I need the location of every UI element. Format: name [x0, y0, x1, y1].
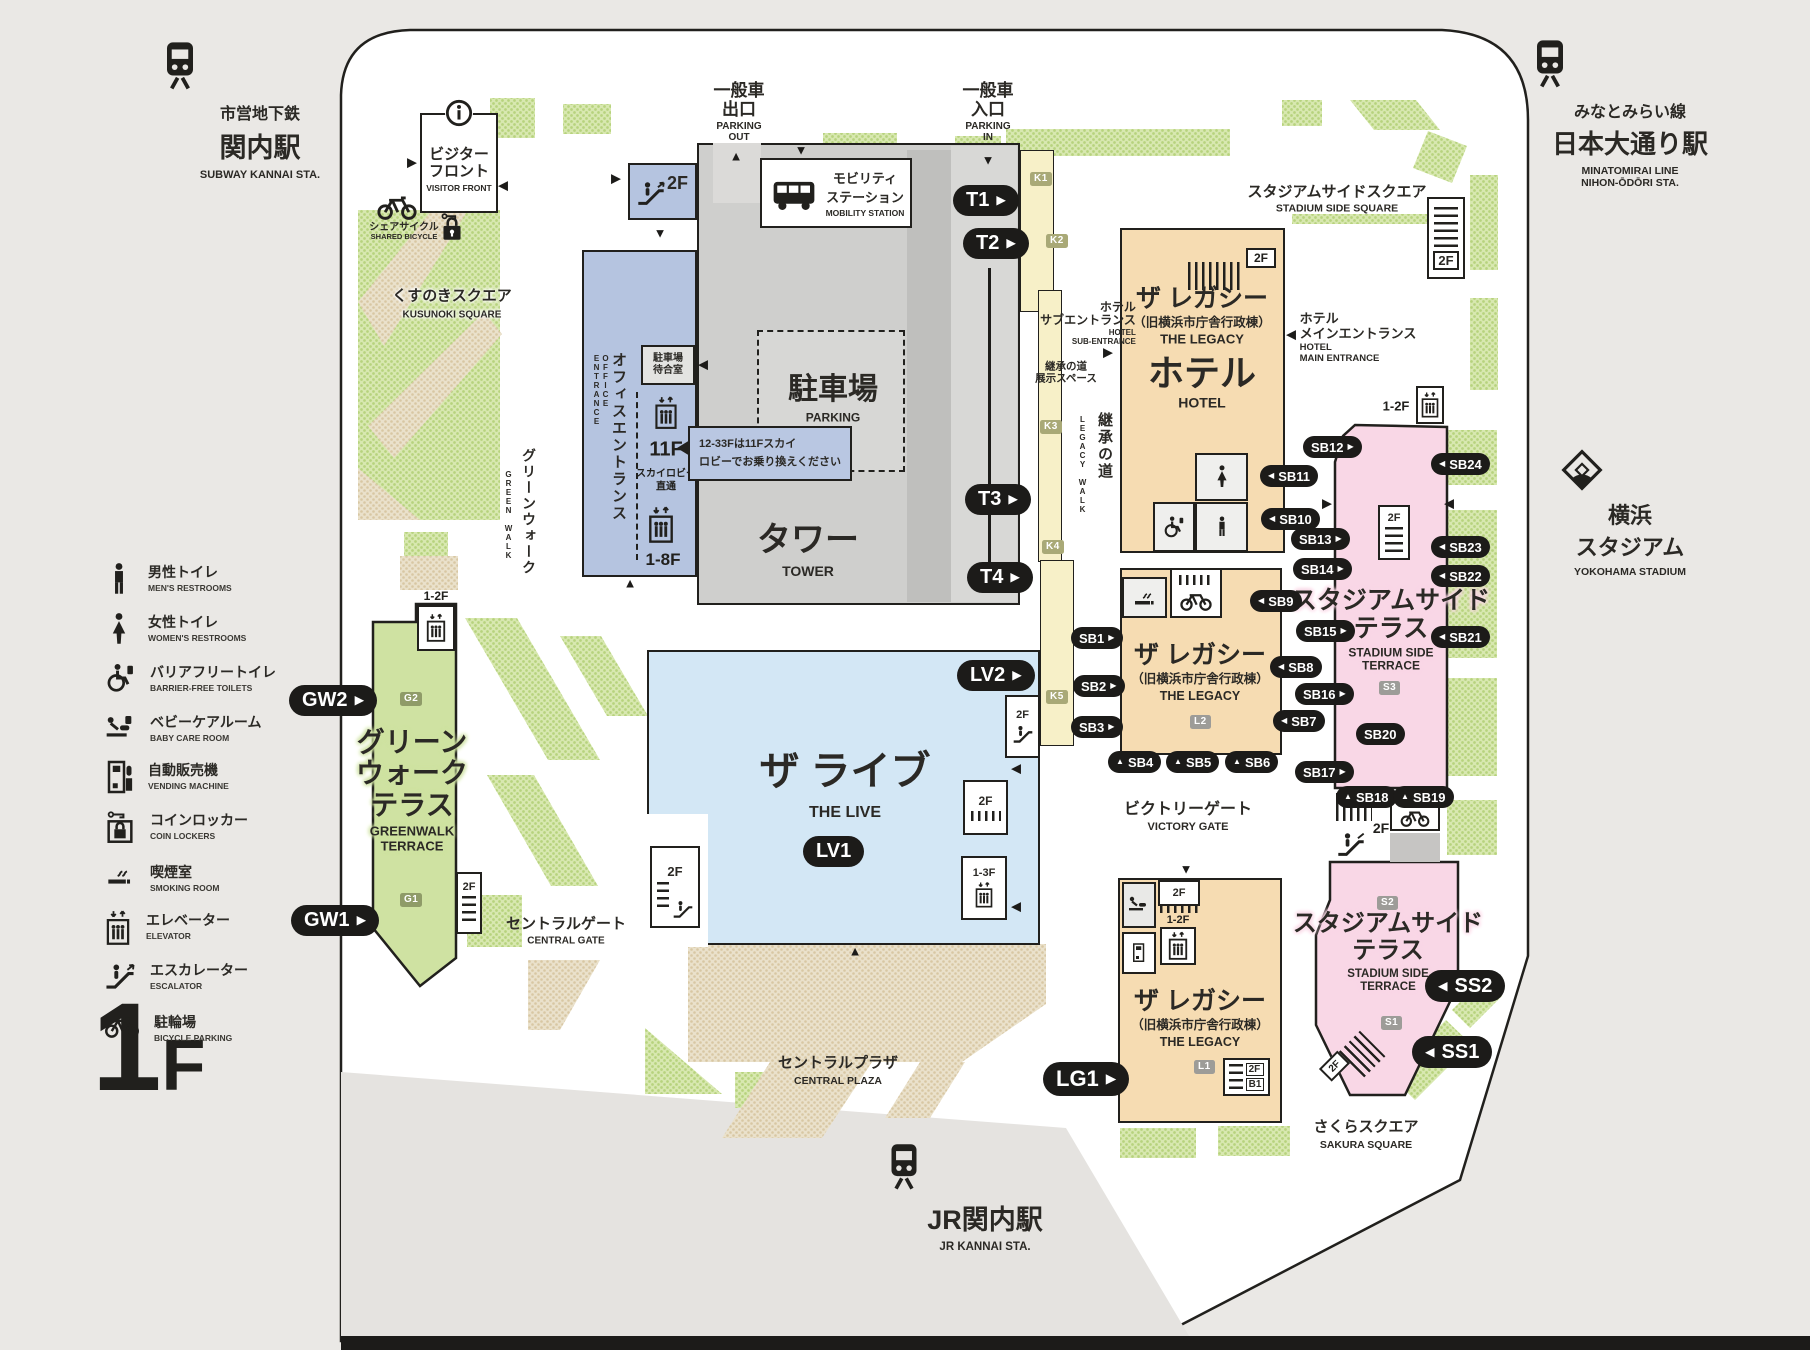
escalator-icon [671, 898, 695, 920]
legend-item-bicycle: 駐輪場BICYCLE PARKING [104, 1012, 232, 1043]
womens-restroom-icon [104, 612, 134, 646]
legend-item-baby-care: ベビーケアルームBABY CARE ROOM [104, 712, 261, 744]
escalator-icon [1336, 828, 1366, 860]
train-icon [1530, 38, 1570, 90]
legacy-walk-label-jp: 継承の道 [1094, 412, 1115, 562]
gate-pill-ss2: ◀SS2 [1425, 970, 1505, 1002]
visitor-front-label: ビジター フロント VISITOR FRONT [426, 147, 492, 193]
gray-service-box [1390, 833, 1440, 862]
floor-tag: 2F [667, 173, 688, 194]
gate-pill-gw2: GW2▶ [289, 685, 377, 716]
legend-item-escalator: エスカレーターESCALATOR [104, 960, 248, 992]
stairs-icon [1229, 1064, 1243, 1090]
gate-pill-sb2: SB2▶ [1073, 675, 1125, 697]
stairs-icon [1434, 207, 1458, 247]
bus-icon [772, 179, 816, 211]
elevator-icon [652, 396, 680, 430]
train-icon [160, 40, 200, 92]
elevator-icon [1420, 391, 1440, 419]
gate-pill-sb9: ◀SB9 [1250, 590, 1302, 612]
train-icon [885, 1142, 923, 1192]
green-walk-label-en: GREEN WALK [504, 470, 513, 590]
tower-label-jp: タワー [757, 521, 859, 559]
baseball-field-icon [1560, 448, 1604, 492]
escalator-icon [636, 178, 666, 208]
legacy-walk-strip-3 [1040, 560, 1074, 746]
gate-pill-sb16: SB16▶ [1295, 683, 1354, 705]
gate-pill-sb13: SB13▶ [1291, 528, 1350, 550]
arrow-left-icon: ◀ [1011, 900, 1021, 913]
road-center-line [988, 268, 991, 568]
south-legacy-stairs-2f-b1-box: 2F B1 [1223, 1058, 1270, 1096]
victory-gate-label-jp: ビクトリーゲート [1124, 801, 1252, 819]
hotel-mens-restroom-box [1195, 502, 1248, 552]
arrow-left-icon: ◀ [698, 358, 708, 371]
stairs-icon [657, 882, 669, 910]
office-elevator-floors: 1-8F [646, 550, 681, 570]
escalator-icon [1012, 723, 1034, 745]
kusunoki-square-label-en: KUSUNOKI SQUARE [403, 309, 502, 320]
marker-l1: L1 [1194, 1060, 1215, 1074]
baby-care-icon [104, 712, 136, 744]
arrow-right-icon: ▶ [1322, 497, 1332, 510]
sky-lobby-label-2: 直通 [656, 478, 676, 493]
legacy-south-title: ザ レガシー （旧横浜市庁舎行政棟） THE LEGACY [1131, 987, 1269, 1049]
gate-pill-sb6: ▲SB6 [1225, 751, 1278, 773]
stairs-icon [1385, 527, 1403, 553]
victory-gate-label-en: VICTORY GATE [1148, 821, 1229, 833]
south-legacy-elevator-box [1160, 927, 1196, 965]
hotel-legacy-title: ザ レガシー （旧横浜市庁舎行政棟） THE LEGACY ホテル HOTEL [1133, 285, 1271, 412]
south-legacy-stairs-box: 2F [1158, 880, 1200, 906]
floor-indicator: 1 F [92, 985, 206, 1110]
arrow-down-icon: ▼ [654, 227, 667, 240]
gate-pill-gw1: GW1▶ [291, 905, 379, 936]
central-plaza-label-en: CENTRAL PLAZA [794, 1076, 882, 1088]
stairs-icon [462, 896, 476, 926]
marker-k5: K5 [1046, 690, 1068, 704]
gate-pill-sb14: SB14▶ [1293, 558, 1352, 580]
gate-pill-sb12: SB12▶ [1303, 436, 1362, 458]
tower-dark-band [907, 150, 951, 602]
gate-pill-sb21: ◀SB21 [1431, 626, 1490, 648]
marker-g1: G1 [400, 893, 422, 907]
info-icon [445, 99, 473, 127]
gate-pill-sb10: ◀SB10 [1261, 508, 1320, 530]
pink-stairs-box: 2F [1378, 505, 1410, 560]
south-legacy-babycare-box [1122, 882, 1156, 928]
central-plaza-label-jp: セントラルプラザ [778, 1056, 898, 1073]
central-gate-label-jp: セントラルゲート [506, 917, 626, 934]
gate-pill-sb5: ▲SB5 [1166, 751, 1219, 773]
vending-machine-icon [104, 760, 134, 794]
terrace-stairs-box: 2F [456, 872, 482, 934]
gate-pill-t3: T3▶ [965, 484, 1031, 515]
gate-pill-sb3: SB3▶ [1071, 716, 1123, 738]
hotel-barrier-free-box [1153, 502, 1195, 552]
legend-item-smoking: 喫煙室SMOKING ROOM [104, 862, 219, 893]
gate-pill-sb20: SB20 [1356, 723, 1405, 745]
stadium-side-square-label: スタジアムサイドスクエア STADIUM SIDE SQUARE [1248, 185, 1427, 216]
gate-pill-sb15: SB15▶ [1296, 620, 1355, 642]
legacy-walk-label-en: LEGACY WALK [1078, 415, 1087, 545]
parking-label-jp: 駐車場 [788, 373, 878, 407]
mens-restroom-icon [1213, 514, 1231, 540]
sakura-square-label-jp: さくらスクエア [1313, 1120, 1418, 1137]
arrow-left-icon: ◀ [1444, 497, 1454, 510]
vending-machine-icon [1130, 940, 1148, 966]
gate-pill-sb7: ◀SB7 [1273, 710, 1325, 732]
central-gate-escalator-box: 2F [650, 846, 700, 928]
legend-item-mens: 男性トイレMEN'S RESTROOMS [104, 562, 232, 596]
gate-pill-sb4: ▲SB4 [1108, 751, 1161, 773]
barrier-free-icon [1162, 514, 1186, 540]
legend-item-vending: 自動販売機VENDING MACHINE [104, 760, 229, 794]
gate-pill-sb17: SB17▶ [1295, 761, 1354, 783]
legacy-mid-title: ザ レガシー （旧横浜市庁舎行政棟） THE LEGACY [1131, 641, 1269, 703]
live-ne-escalator-box: 2F [1005, 695, 1040, 758]
arrow-up-icon: ▲ [849, 945, 862, 958]
stairs-icon [1179, 575, 1213, 585]
sky-lobby-note: 12-33Fは11Fスカイ ロビーでお乗り換えください [688, 426, 852, 481]
shared-bicycle-icon [376, 190, 418, 220]
terrace-elevator-floors: 1-2F [424, 589, 449, 603]
elevator-icon [974, 881, 994, 909]
parking-in-label: 一般車 入口 PARKING IN [963, 81, 1014, 143]
the-live-title-en: THE LIVE [809, 804, 881, 822]
legend-item-barrier-free: バリアフリートイレBARRIER-FREE TOILETS [104, 662, 276, 694]
marker-l2: L2 [1190, 715, 1211, 729]
marker-s2: S2 [1377, 896, 1398, 910]
legend-item-womens: 女性トイレWOMEN'S RESTROOMS [104, 612, 246, 646]
arrow-left-icon: ◀ [1286, 328, 1296, 341]
marker-k3: K3 [1040, 420, 1062, 434]
arrow-left-icon: ◀ [1011, 762, 1021, 775]
office-escalator-box: 2F [628, 163, 697, 220]
mobility-station-box: モビリティ ステーション MOBILITY STATION [760, 158, 912, 228]
office-entrance-label-jp: オフィスエントランス [608, 352, 629, 542]
gate-pill-lg1: LG1▶ [1043, 1062, 1129, 1096]
terrace-elevator-box [417, 605, 455, 651]
station-minatomirai: みなとみらい線 日本大通り駅 MINATOMIRAI LINE NIHON-ŌD… [1530, 38, 1730, 189]
stairs-icon [1160, 906, 1198, 913]
hotel-main-entrance-label: ホテル メインエントランス HOTEL MAIN ENTRANCE [1300, 312, 1417, 364]
arrow-right-icon: ▶ [1103, 346, 1113, 359]
between-pinks-floor: 2F [1373, 820, 1389, 836]
gate-pill-t4: T4▶ [967, 562, 1033, 593]
hotel-womens-restroom-box [1195, 453, 1248, 501]
legend-item-coin-locker: コインロッカーCOIN LOCKERS [104, 810, 248, 844]
baby-care-icon [1127, 893, 1151, 917]
gate-pill-sb1: SB1▶ [1071, 627, 1123, 649]
legacy-exhibit-label: 継承の道 展示スペース [1035, 361, 1097, 385]
gate-pill-t2: T2▶ [963, 228, 1029, 259]
mid-legacy-cycle-box [1170, 568, 1222, 618]
gate-pill-sb22: ◀SB22 [1431, 565, 1490, 587]
gate-pill-lv1: LV1 [803, 836, 864, 867]
arrow-down-icon: ▼ [982, 154, 995, 167]
parking-out-label: 一般車 出口 PARKING OUT [714, 81, 765, 143]
gate-pill-sb19: ▲SB19 [1393, 786, 1454, 808]
live-elevator-box: 1-3F [961, 856, 1007, 920]
the-live-title-jp: ザ ライブ [759, 750, 930, 795]
ne-stairs-box: 2F [1427, 197, 1465, 279]
central-gate-label-en: CENTRAL GATE [527, 935, 604, 946]
coin-locker-icon [104, 810, 136, 844]
escalator-icon [104, 960, 136, 992]
gate-pill-sb11: ◀SB11 [1260, 465, 1318, 487]
elevator-icon [1167, 931, 1189, 961]
stairs-icon [971, 811, 1001, 821]
arrow-right-icon: ▶ [611, 172, 621, 185]
station-jr: JR関内駅 JR KANNAI STA. [885, 1142, 1085, 1253]
arrow-down-icon: ▼ [795, 144, 808, 157]
hotel-stairs-floor: 2F [1246, 248, 1276, 268]
gate-pill-sb24: ◀SB24 [1431, 453, 1490, 475]
elevator-icon [104, 910, 132, 946]
elevator-icon [646, 506, 676, 544]
arrow-up-icon: ▲ [624, 577, 637, 590]
marker-s3: S3 [1379, 681, 1400, 695]
womens-restroom-icon [1212, 464, 1232, 490]
tower-label-en: TOWER [782, 564, 834, 580]
mens-restroom-icon [104, 562, 134, 596]
marker-g2: G2 [400, 692, 422, 706]
gate-pill-ss1: ◀SS1 [1412, 1036, 1492, 1068]
office-entrance-label-en: OFFICE ENTRANCE [592, 354, 610, 474]
stadium-marker: 横浜 スタジアム YOKOHAMA STADIUM [1560, 448, 1700, 578]
gate-pill-lv2: LV2▶ [957, 660, 1035, 691]
callout-tail [677, 440, 690, 456]
barrier-free-icon [104, 662, 136, 694]
arrow-right-icon: ▶ [407, 156, 417, 169]
bicycle-parking-icon [104, 1012, 140, 1038]
smoking-room-icon [1132, 586, 1158, 610]
shared-bicycle-label: シェアサイクル SHARED BICYCLE [369, 222, 439, 242]
kusunoki-square-label-jp: くすのきスクエア [392, 289, 512, 306]
green-walk-label-jp: グリーンウォーク [519, 448, 539, 628]
mid-legacy-smoking-box [1122, 577, 1167, 618]
south-legacy-elevator-floors: 1-2F [1167, 914, 1190, 926]
arrow-down-icon: ▼ [1180, 863, 1193, 876]
pink-elevator-floors: 1-2F [1383, 399, 1410, 414]
marker-k4: K4 [1042, 540, 1064, 554]
marker-k2: K2 [1046, 234, 1068, 248]
key-locker-icon [440, 212, 464, 244]
elevator-icon [425, 613, 447, 643]
sakura-square-label-en: SAKURA SQUARE [1320, 1140, 1412, 1152]
gate-pill-sb23: ◀SB23 [1431, 536, 1490, 558]
gate-pill-sb8: ◀SB8 [1270, 656, 1322, 678]
parking-label-en: PARKING [806, 411, 860, 424]
station-subway: 市営地下鉄 関内駅 SUBWAY KANNAI STA. [160, 40, 360, 181]
pink-elevator-box [1416, 386, 1444, 424]
hotel-sub-entrance-label: ホテル サブエントランス HOTEL SUB-ENTRANCE [1040, 301, 1136, 347]
bicycle-parking-icon [1179, 587, 1213, 611]
smoking-room-icon [104, 862, 136, 890]
greenwalk-terrace-title: グリーン ウォーク テラス GREENWALK TERRACE [356, 726, 468, 853]
gate-pill-t1: T1▶ [953, 185, 1019, 216]
arrow-left-icon: ◀ [498, 179, 508, 192]
gate-pill-sb18: ▲SB18 [1336, 786, 1397, 808]
south-legacy-vending-box [1122, 932, 1156, 974]
arrow-up-icon: ▲ [730, 150, 743, 163]
marker-k1: K1 [1030, 172, 1052, 186]
parking-waiting-room-box: 駐車場 待合室 [641, 345, 695, 385]
legend-item-elevator: エレベーターELEVATOR [104, 910, 230, 946]
live-stairs-box: 2F [963, 780, 1008, 835]
marker-s1: S1 [1381, 1016, 1402, 1030]
